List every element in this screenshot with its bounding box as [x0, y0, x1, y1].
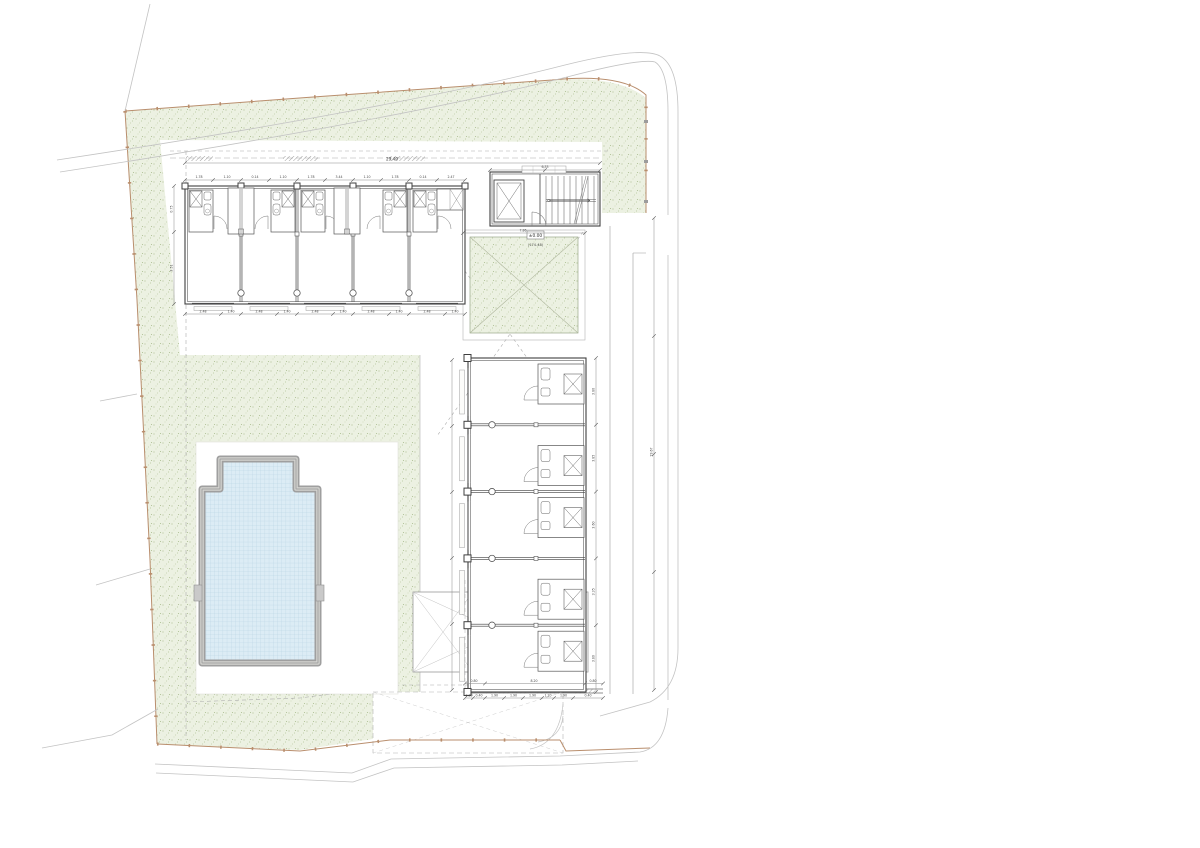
- dimension-label: 1.10: [363, 175, 370, 179]
- dimension-label: 8.20: [530, 679, 537, 683]
- dimension-label: 1.90: [510, 693, 517, 697]
- dimension-label: 0.80: [470, 679, 477, 683]
- dimension-label: 7.86: [519, 229, 526, 233]
- dimension-label: 1.40: [227, 309, 234, 313]
- dimension-label: 29.40: [386, 157, 398, 162]
- building-right-wing: [460, 355, 587, 696]
- dimension-label: 1.20: [544, 693, 551, 697]
- dimension-label: 1.78: [195, 175, 202, 179]
- dimension-label: 1.78: [391, 175, 398, 179]
- pool-ladder-right: [316, 585, 324, 601]
- dimension-label: 3.60: [591, 521, 595, 528]
- pool-ladder-left: [194, 585, 202, 601]
- dimension-label: 2.48: [367, 309, 374, 313]
- dimension-label: 29.67: [650, 447, 654, 456]
- pool-area: [194, 442, 398, 694]
- green-left-band: [125, 111, 180, 355]
- dimension-label: 1.78: [307, 175, 314, 179]
- drawing-sheet: ±0.00 (174.48) 29.406.337.8629.670.753.5…: [0, 0, 1200, 848]
- building-top-wing: [182, 183, 468, 311]
- dimension-label: 1.40: [395, 309, 402, 313]
- dimension-label: 0.80: [589, 679, 596, 683]
- dimension-label: 0.75: [170, 205, 174, 212]
- bottom-court-driveway: [373, 692, 563, 753]
- level-label: ±0.00: [529, 233, 543, 239]
- dimension-label: 2.48: [423, 309, 430, 313]
- dimension-label: 2.48: [255, 309, 262, 313]
- dimension-label: 1.90: [491, 693, 498, 697]
- dimension-label: 3.85: [591, 455, 595, 462]
- dimension-label: 0.40: [475, 693, 482, 697]
- dimension-label: 1.40: [339, 309, 346, 313]
- site-plan-canvas: ±0.00 (174.48) 29.406.337.8629.670.753.5…: [0, 0, 1200, 848]
- dimension-label: 3.35: [591, 588, 595, 595]
- dimension-label: 2.47: [447, 175, 454, 179]
- dimension-label: 0.40: [584, 693, 591, 697]
- dimension-label: 1.10: [223, 175, 230, 179]
- dimension-label: 0.14: [419, 175, 426, 179]
- dimension-label: 6.33: [541, 165, 548, 169]
- elevation-label: (174.48): [528, 243, 544, 247]
- dimension-label: 3.80: [591, 655, 595, 662]
- dimension-label: 3.51: [170, 264, 174, 271]
- dimension-label: 3.44: [335, 175, 342, 179]
- dimension-label: 1.40: [283, 309, 290, 313]
- dimension-label: 0.14: [251, 175, 258, 179]
- dimension-label: 1.10: [279, 175, 286, 179]
- dimension-label: 2.48: [199, 309, 206, 313]
- dimension-label: 1.40: [451, 309, 458, 313]
- dimension-label: 3.80: [591, 388, 595, 395]
- dimension-label: 2.48: [311, 309, 318, 313]
- dimension-label: 0.80: [465, 693, 472, 697]
- dimension-label: 1.90: [560, 693, 567, 697]
- dimension-label: 1.90: [529, 693, 536, 697]
